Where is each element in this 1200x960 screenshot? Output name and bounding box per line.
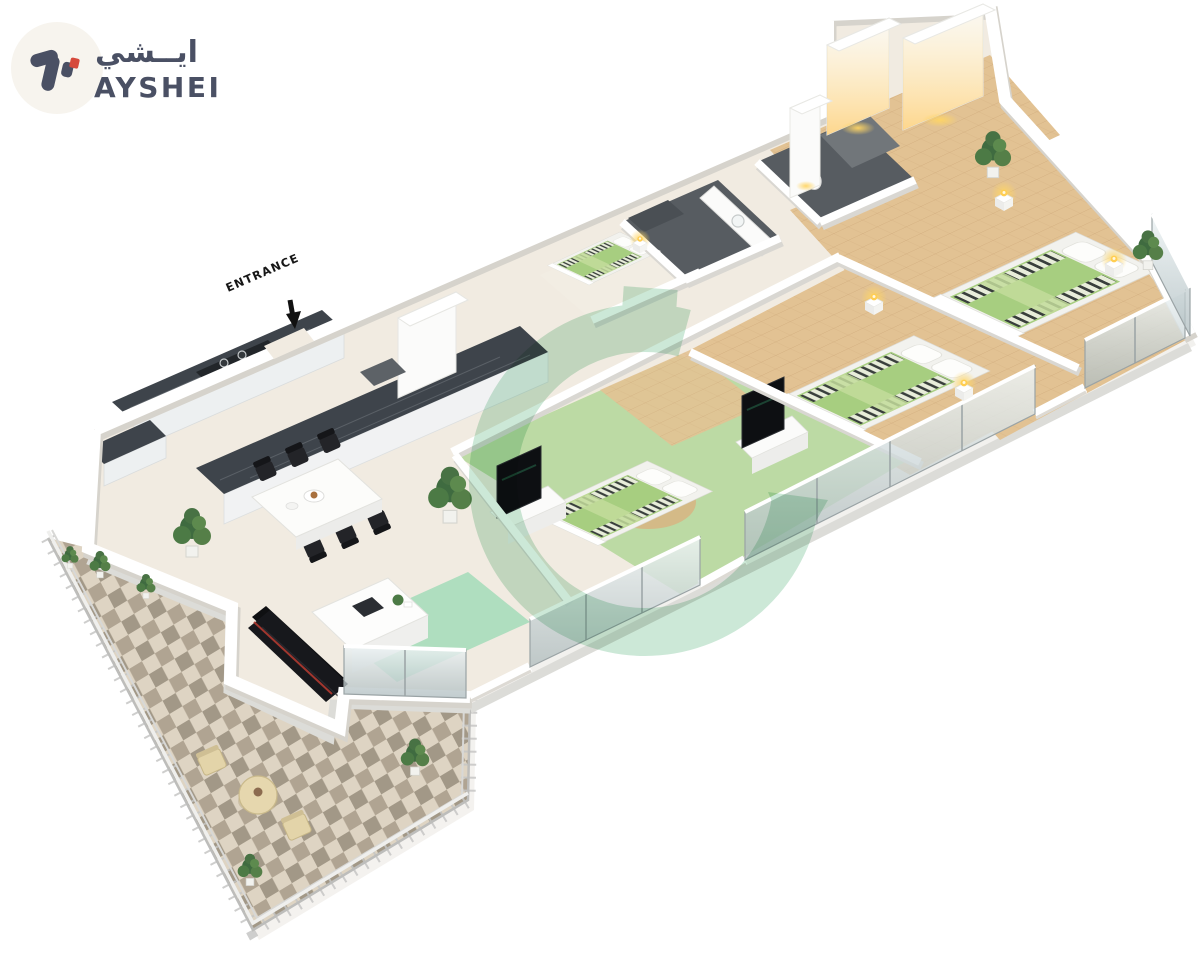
outdoor-table: [238, 776, 278, 814]
watermark-square: [620, 286, 677, 338]
entrance-label: ENTRANCE: [224, 251, 302, 295]
logo: ايــشي AYSHEI: [11, 22, 221, 114]
floor-plan-page: ENTRANCE ايــشي AYSHEI: [0, 0, 1200, 960]
entrance-annotation: ENTRANCE: [224, 251, 302, 329]
floor-plan-render: ENTRANCE ايــشي AYSHEI: [0, 0, 1200, 960]
window-glass-living: [344, 646, 466, 698]
brand-arabic-text: ايــشي: [95, 35, 198, 70]
brand-latin-text: AYSHEI: [94, 71, 221, 104]
